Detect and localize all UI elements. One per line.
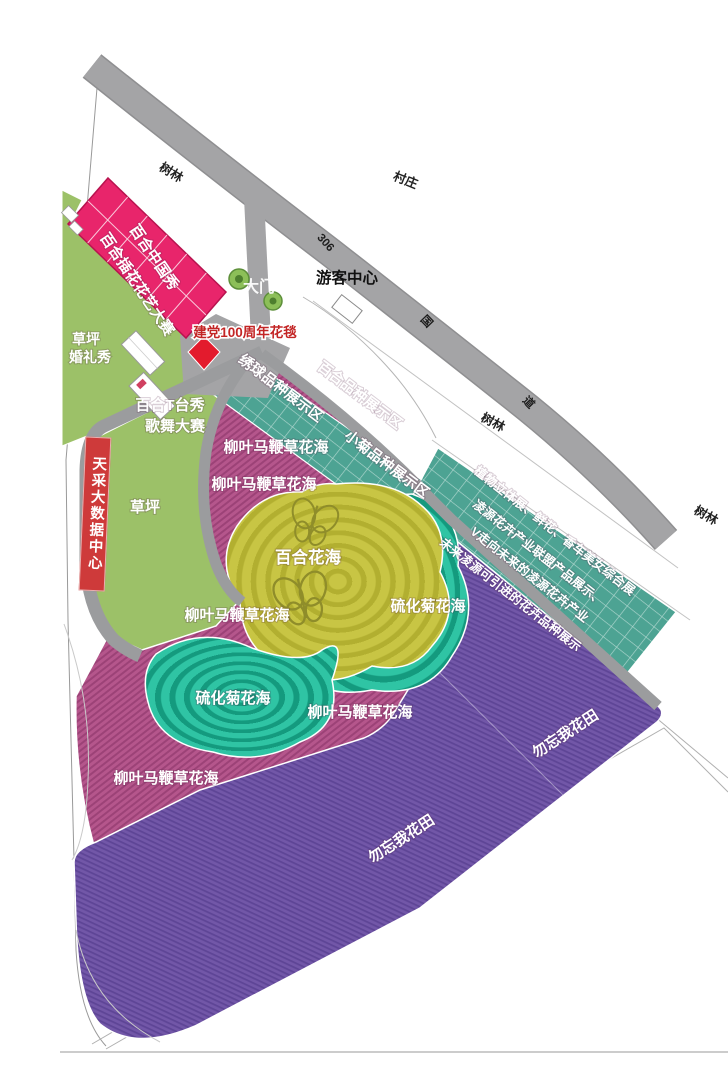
label-verbena-sea-3: 柳叶马鞭草花海: [184, 606, 289, 624]
road-entrance: [254, 198, 261, 338]
site-plan-map: 树林 村庄 树林 树林 306 国 道 大门 游客中心 建党100周年花毯 百合…: [0, 0, 728, 1067]
label-lawn-wedding-1: 草坪: [72, 331, 100, 347]
label-verbena-sea-5: 柳叶马鞭草花海: [113, 769, 218, 787]
label-lily-stage-show-1: 百合T台秀: [135, 396, 205, 414]
site-plan-page: 活动分布总平面图: [0, 0, 728, 1067]
label-lawn-wedding-2: 婚礼秀: [69, 349, 112, 365]
label-lawn: 草坪: [130, 498, 160, 516]
label-sulfur-chrysanthemum-1: 硫化菊花海: [390, 597, 465, 615]
label-verbena-sea-2: 柳叶马鞭草花海: [211, 475, 316, 493]
label-sulfur-chrysanthemum-2: 硫化菊花海: [195, 689, 270, 707]
label-lily-sea: 百合花海: [275, 547, 342, 567]
label-visitor-center: 游客中心: [316, 268, 379, 287]
label-verbena-sea-4: 柳叶马鞭草花海: [307, 703, 412, 721]
label-verbena-sea-1: 柳叶马鞭草花海: [223, 438, 328, 456]
label-lily-stage-show-2: 歌舞大赛: [145, 417, 206, 435]
label-flower-carpet: 建党100周年花毯: [192, 324, 297, 340]
label-gate: 大门: [243, 277, 275, 296]
